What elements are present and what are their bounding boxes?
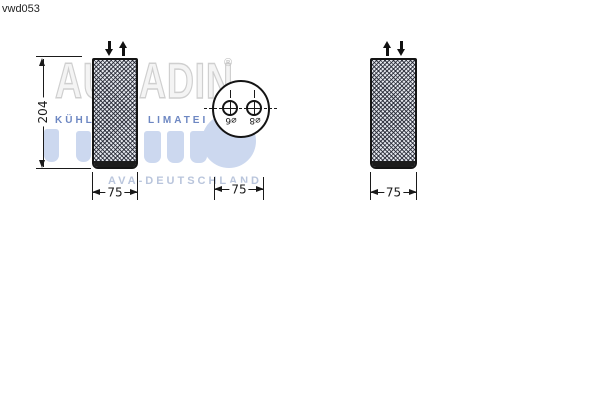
logo-bar — [76, 131, 91, 162]
port-left-label: ⌀6 — [225, 115, 236, 125]
width-dimension-side: 75 — [370, 186, 417, 200]
flow-arrow-up-icon — [119, 41, 128, 56]
flow-arrow-down-icon — [105, 41, 114, 56]
port-center-mark — [224, 108, 236, 109]
drier-side-view-body — [370, 58, 417, 169]
catalog-drawing-canvas: vwd053 AU ADIN ® KÜHL LIMATEI AVA-DEUTSC… — [0, 0, 600, 400]
height-dimension-value: 204 — [35, 98, 51, 127]
flow-arrow-down-icon — [397, 41, 406, 56]
watermark-tagline-fragment-right: LIMATEI — [148, 115, 208, 126]
port-center-mark — [248, 108, 260, 109]
flow-arrow-up-icon — [383, 41, 392, 56]
dimension-extension-line — [36, 56, 82, 57]
logo-bar — [167, 131, 184, 163]
registered-trademark-icon: ® — [224, 57, 232, 69]
drier-bottom-cap — [94, 161, 136, 167]
width-dimension-value-front: 75 — [105, 186, 124, 200]
width-dimension-top: 75 — [214, 183, 264, 197]
centerline-vertical — [230, 90, 231, 98]
dimension-extension-line — [36, 168, 91, 169]
centerline-vertical — [254, 90, 255, 98]
logo-bar — [144, 131, 161, 163]
drier-front-view-body — [92, 58, 138, 169]
drier-bottom-cap — [372, 161, 415, 167]
centerline-horizontal — [204, 108, 277, 109]
width-dimension-value-top: 75 — [229, 183, 248, 197]
width-dimension-front: 75 — [92, 186, 138, 200]
watermark-tagline-fragment-left: KÜHL — [55, 115, 95, 126]
width-dimension-value-side: 75 — [384, 186, 403, 200]
part-code-label: vwd053 — [2, 3, 40, 15]
port-right-label: ⌀8 — [249, 115, 260, 125]
